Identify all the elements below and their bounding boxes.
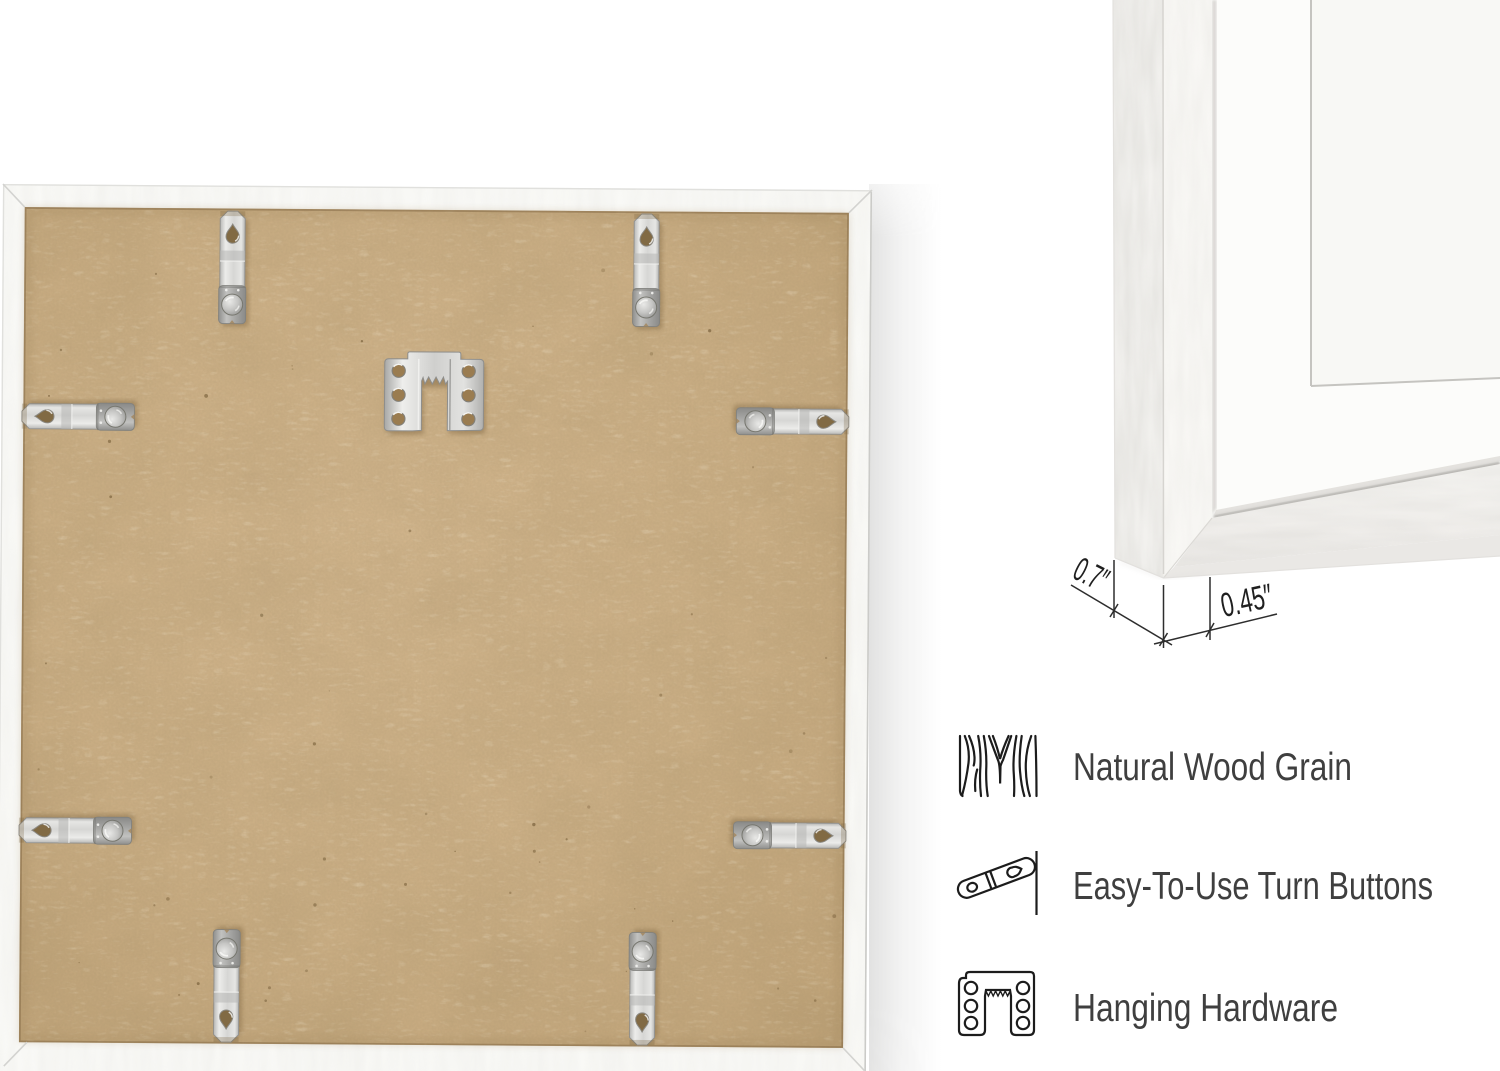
svg-text:Easy-To-Use Turn Buttons: Easy-To-Use Turn Buttons	[1073, 865, 1433, 908]
svg-text:Natural Wood Grain: Natural Wood Grain	[1073, 746, 1352, 789]
svg-text:Hanging Hardware: Hanging Hardware	[1073, 987, 1338, 1030]
